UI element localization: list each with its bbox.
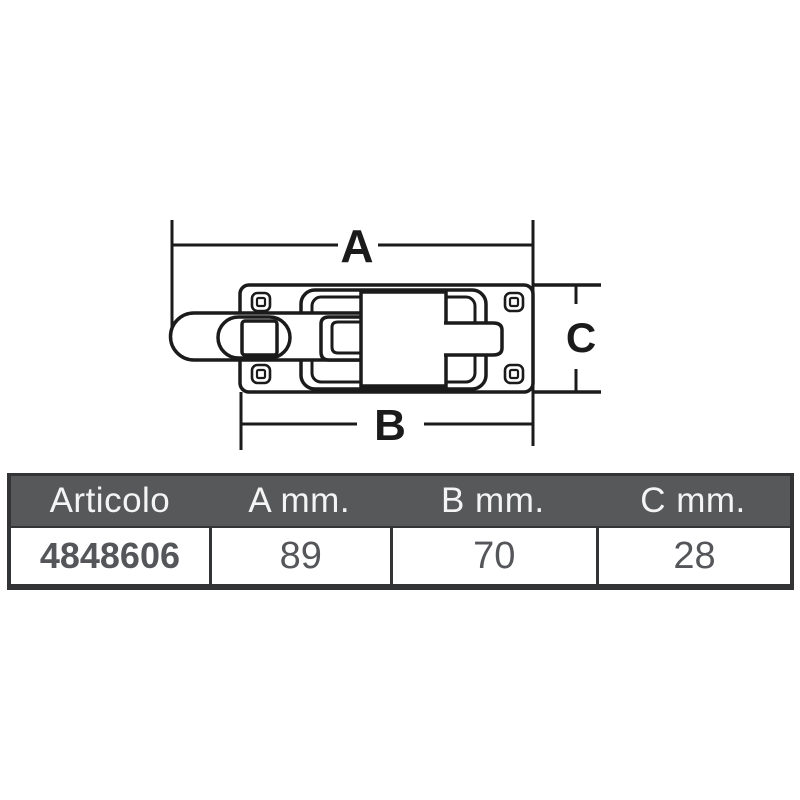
cell-article-number: 4848606	[11, 528, 209, 584]
dim-label-c: C	[566, 314, 596, 361]
latch-body	[170, 285, 601, 392]
dim-label-a: A	[340, 220, 373, 272]
lever-slot	[242, 321, 277, 355]
cam-block	[361, 292, 446, 386]
header-cell-c-mm: C mm.	[596, 476, 790, 526]
screw-hole-center	[510, 370, 518, 378]
header-cell-a-mm: A mm.	[209, 476, 390, 526]
cell-c-value: 28	[596, 528, 790, 584]
header-cell-b-mm: B mm.	[390, 476, 596, 526]
spec-table: Articolo A mm. B mm. C mm. 4848606 89 70…	[7, 473, 794, 590]
cell-b-value: 70	[390, 528, 596, 584]
spec-table-header-row: Articolo A mm. B mm. C mm.	[11, 476, 790, 528]
screw-hole-center	[510, 298, 518, 306]
screw-hole-center	[257, 370, 265, 378]
cell-a-value: 89	[209, 528, 390, 584]
page: A B C Articolo A mm. B mm. C mm. 4848606…	[0, 0, 800, 800]
dim-label-b: B	[374, 401, 406, 450]
technical-drawing: A B C	[0, 0, 800, 470]
right-tab	[444, 323, 502, 355]
catch-inner	[332, 322, 363, 353]
screw-hole-center	[257, 298, 265, 306]
spec-table-data-row: 4848606 89 70 28	[11, 528, 790, 584]
header-cell-articolo: Articolo	[11, 476, 209, 526]
